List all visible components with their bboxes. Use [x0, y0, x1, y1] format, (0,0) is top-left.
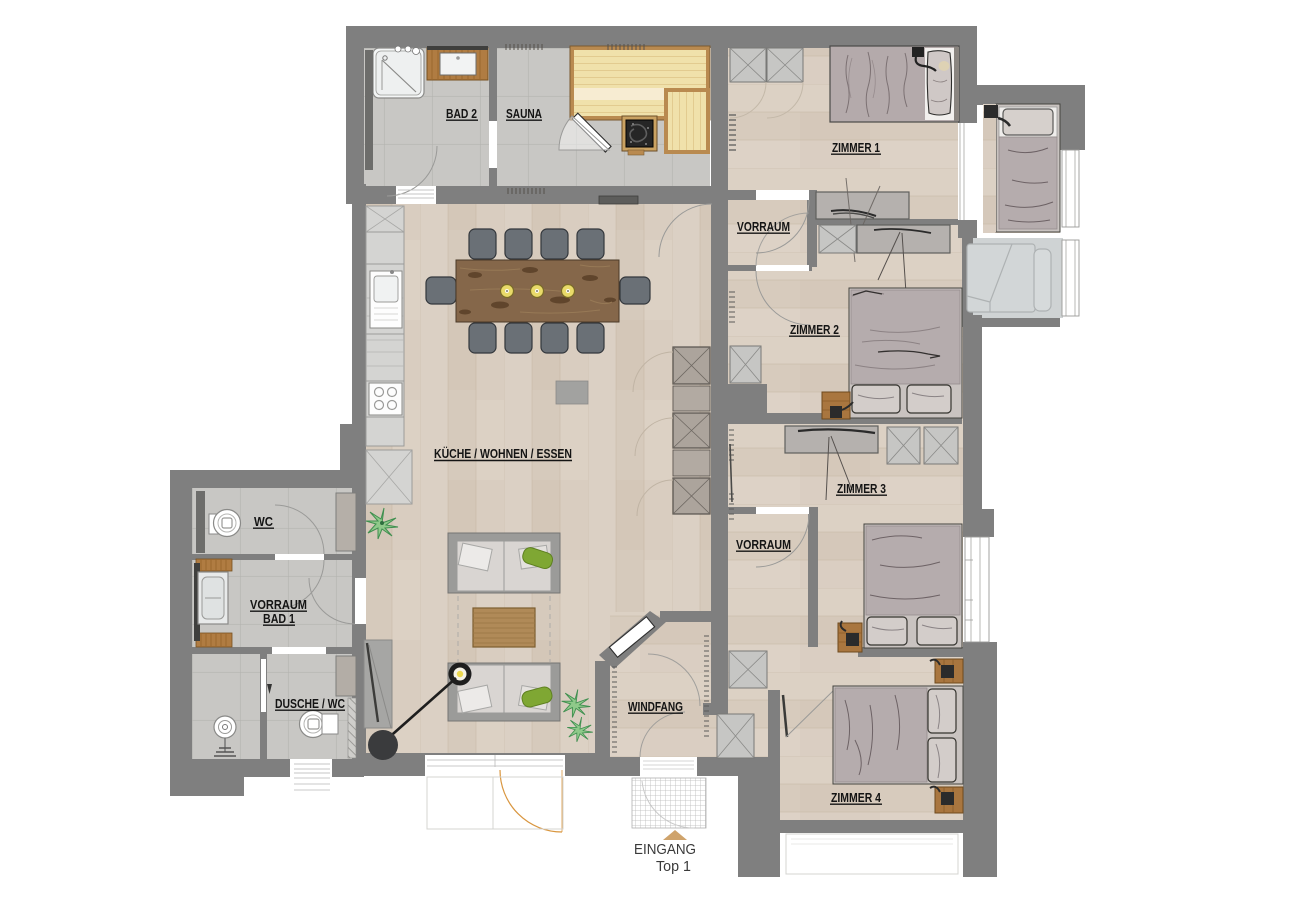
svg-text:SAUNA: SAUNA [506, 107, 542, 121]
svg-text:ZIMMER 3: ZIMMER 3 [837, 482, 886, 496]
svg-text:KÜCHE / WOHNEN / ESSEN: KÜCHE / WOHNEN / ESSEN [434, 446, 572, 461]
svg-text:ZIMMER 1: ZIMMER 1 [832, 141, 880, 155]
svg-text:VORRAUM: VORRAUM [736, 538, 791, 552]
svg-text:DUSCHE / WC: DUSCHE / WC [275, 697, 345, 711]
svg-text:Top 1: Top 1 [656, 858, 691, 875]
svg-text:WC: WC [254, 515, 273, 529]
svg-text:VORRAUM: VORRAUM [250, 598, 307, 612]
svg-text:ZIMMER 4: ZIMMER 4 [831, 791, 881, 805]
svg-text:EINGANG: EINGANG [634, 841, 696, 858]
svg-text:BAD 2: BAD 2 [446, 107, 477, 121]
svg-text:BAD 1: BAD 1 [263, 612, 295, 626]
svg-text:WINDFANG: WINDFANG [628, 700, 683, 714]
svg-text:VORRAUM: VORRAUM [737, 220, 790, 234]
svg-text:ZIMMER 2: ZIMMER 2 [790, 323, 839, 337]
